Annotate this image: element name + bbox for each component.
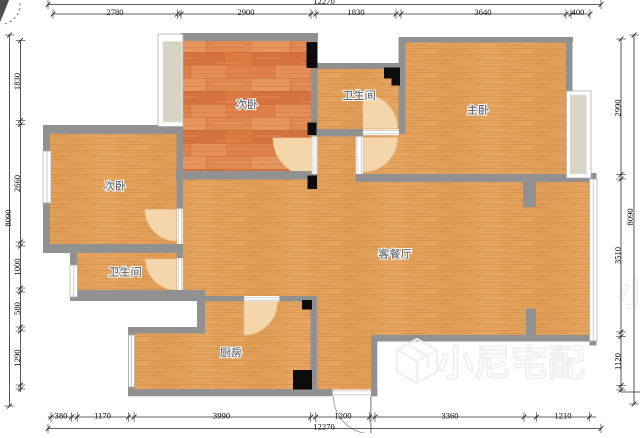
svg-text:3510: 3510 xyxy=(612,247,622,264)
svg-text:1200: 1200 xyxy=(334,411,351,421)
svg-text:1120: 1120 xyxy=(612,353,622,370)
svg-text:3640: 3640 xyxy=(474,7,491,17)
svg-text:3360: 3360 xyxy=(441,411,458,421)
svg-text:1000: 1000 xyxy=(12,258,22,275)
svg-text:580: 580 xyxy=(12,302,22,315)
svg-text:1170: 1170 xyxy=(94,411,111,421)
svg-text:2900: 2900 xyxy=(237,7,254,17)
svg-text:3990: 3990 xyxy=(213,411,230,421)
svg-text:1210: 1210 xyxy=(554,411,571,421)
svg-text:380: 380 xyxy=(55,411,68,421)
svg-text:2990: 2990 xyxy=(612,99,622,116)
svg-text:1830: 1830 xyxy=(12,73,22,90)
svg-text:1830: 1830 xyxy=(347,7,364,17)
svg-text:8090: 8090 xyxy=(625,208,635,225)
svg-text:12270: 12270 xyxy=(313,0,334,6)
svg-text:12270: 12270 xyxy=(313,422,334,432)
svg-text:2660: 2660 xyxy=(12,175,22,192)
svg-text:2780: 2780 xyxy=(106,7,123,17)
svg-text:8090: 8090 xyxy=(3,209,13,226)
svg-text:1290: 1290 xyxy=(12,349,22,366)
svg-text:400: 400 xyxy=(572,7,585,17)
